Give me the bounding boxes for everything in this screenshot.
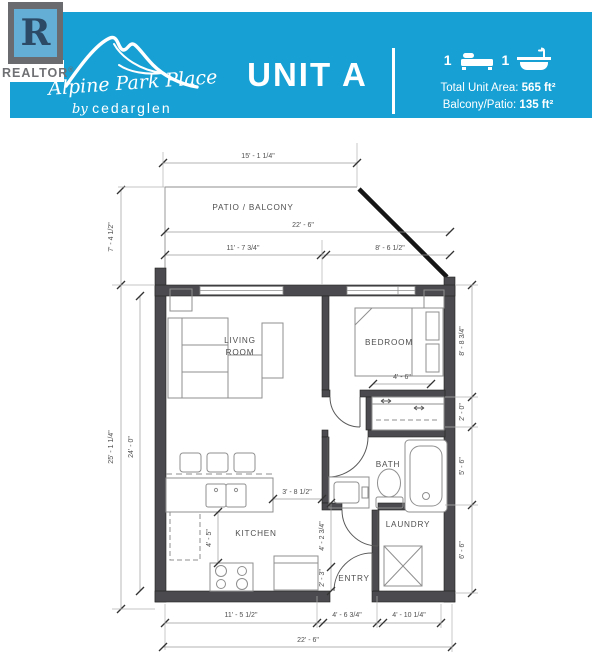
dim-right-laundry: 6' - 6" — [459, 541, 466, 559]
double-sink — [206, 484, 246, 507]
dim-hall-depth: 4' - 2 3/4" — [319, 521, 326, 551]
dim-bottom-left: 11' - 5 1/2" — [225, 612, 258, 619]
sofa — [168, 318, 262, 398]
stool — [207, 453, 228, 472]
dim-right-bedroom: 8' - 8 3/4" — [459, 326, 466, 356]
laundry-label: LAUNDRY — [386, 520, 431, 529]
living-label-2: ROOM — [226, 348, 255, 357]
patio-label: PATIO / BALCONY — [212, 203, 293, 212]
living-label-1: LIVING — [224, 336, 256, 345]
dim-patio-width: 22' - 6" — [292, 222, 314, 229]
window — [200, 287, 283, 295]
stool — [234, 453, 255, 472]
floorplan-drawing: PATIO / BALCONY LIVING ROOM BEDROOM KITC… — [0, 0, 602, 669]
balcony-glass-rail — [359, 189, 447, 277]
bath-label: BATH — [376, 460, 400, 469]
dim-top-width: 15' - 1 1/4" — [241, 153, 275, 160]
laundry-fixtures — [384, 546, 422, 586]
bathtub — [405, 440, 447, 512]
dim-left-inner: 24' - 0" — [128, 436, 135, 458]
dim-right-bath: 5' - 6" — [459, 457, 466, 475]
dim-bottom-right: 4' - 10 1/4" — [392, 612, 426, 619]
bath-door — [328, 437, 368, 477]
entry-door — [334, 553, 372, 591]
toilet — [376, 469, 403, 508]
dim-bottom-overall: 22' - 6" — [297, 637, 319, 644]
dim-bedroom-width: 8' - 6 1/2" — [375, 245, 405, 252]
dim-closet-width: 4' - 6" — [393, 374, 411, 381]
dim-right-closet: 2' - 0" — [459, 403, 466, 421]
counter-cabinet — [170, 512, 200, 560]
bedroom-door — [330, 397, 360, 427]
stool — [180, 453, 201, 472]
bedroom-label: BEDROOM — [365, 338, 413, 347]
dishwasher — [274, 556, 318, 590]
stove — [210, 563, 253, 591]
bath-fixtures — [329, 440, 447, 512]
kitchen-fixtures — [166, 453, 318, 591]
dim-patio-depth: 7' - 4 1/2" — [108, 222, 115, 252]
dim-bottom-entry: 4' - 6 3/4" — [332, 612, 362, 619]
entry-label: ENTRY — [338, 574, 370, 583]
kitchen-island — [166, 474, 273, 512]
window — [347, 287, 415, 295]
floorplan-sheet: Alpine Park Place by cedarglen UNIT A 1 … — [0, 0, 602, 669]
washer — [384, 546, 422, 586]
dim-living-width: 11' - 7 3/4" — [227, 245, 260, 252]
dim-left-overall: 25' - 1 1/4" — [108, 430, 115, 464]
tv-console — [262, 323, 283, 378]
kitchen-label: KITCHEN — [235, 529, 277, 538]
dim-kitchen-depth: 4' - 5" — [206, 529, 213, 547]
dim-entry-depth: 2' - 3" — [319, 569, 326, 587]
dim-kitchen-pass: 3' - 8 1/2" — [282, 489, 312, 496]
closet — [372, 397, 444, 430]
